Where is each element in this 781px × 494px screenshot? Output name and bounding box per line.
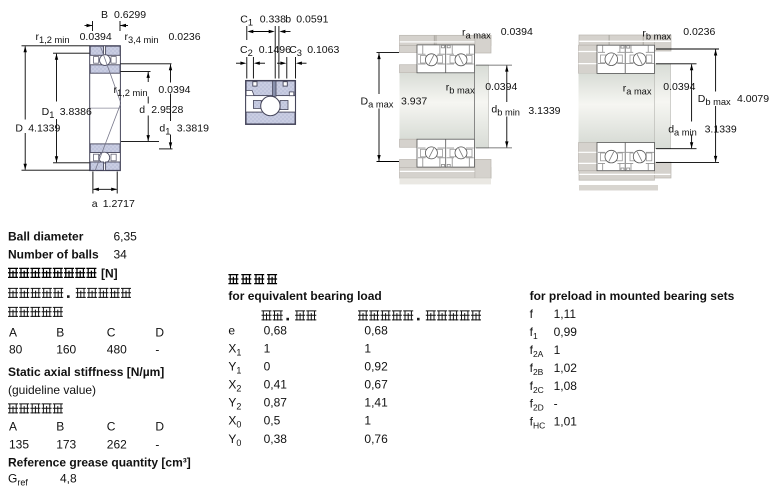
svg-text:1,08: 1,08 (554, 379, 578, 393)
svg-text:0: 0 (264, 360, 271, 374)
svg-text:3.937: 3.937 (401, 96, 427, 108)
svg-text:D: D (155, 325, 164, 339)
svg-text:0.0236: 0.0236 (169, 31, 201, 43)
svg-text:1,41: 1,41 (364, 396, 388, 410)
svg-text:1,02: 1,02 (554, 361, 578, 375)
svg-text:A: A (9, 325, 17, 339)
svg-text:Number of balls: Number of balls (8, 248, 99, 262)
svg-text:0.0394: 0.0394 (158, 84, 190, 96)
svg-text:0,68: 0,68 (264, 324, 288, 338)
svg-text:0.0394: 0.0394 (485, 81, 517, 93)
svg-text:1,01: 1,01 (554, 415, 578, 429)
svg-text:3.8386: 3.8386 (60, 106, 92, 118)
svg-text:0,67: 0,67 (364, 378, 388, 392)
svg-text:173: 173 (56, 437, 76, 451)
svg-text:b: b (285, 14, 291, 26)
svg-text:0.338: 0.338 (260, 14, 286, 26)
svg-text:for equivalent bearing load: for equivalent bearing load (228, 289, 381, 303)
svg-text:-: - (554, 397, 558, 411)
svg-text:262: 262 (107, 437, 127, 451)
svg-text:1,11: 1,11 (554, 307, 577, 321)
svg-text:a: a (92, 198, 98, 210)
svg-text:80: 80 (9, 343, 23, 357)
svg-text:0.0394: 0.0394 (80, 31, 112, 43)
svg-text:4.0079: 4.0079 (737, 93, 769, 105)
svg-text:4,8: 4,8 (60, 472, 77, 486)
svg-text:34: 34 (114, 248, 128, 262)
svg-text:D: D (155, 420, 164, 434)
svg-text:d: d (139, 104, 145, 116)
svg-text:B: B (56, 420, 64, 434)
svg-text:1: 1 (364, 342, 371, 356)
svg-text:0,99: 0,99 (554, 325, 578, 339)
svg-text:C: C (107, 325, 116, 339)
svg-text:1.2717: 1.2717 (103, 198, 135, 210)
svg-text:[N]: [N] (101, 267, 118, 281)
svg-text:6,35: 6,35 (114, 230, 138, 244)
svg-text:3.1339: 3.1339 (528, 105, 560, 117)
svg-text:4.1339: 4.1339 (28, 123, 60, 135)
svg-text:3.3819: 3.3819 (177, 123, 209, 135)
svg-text:C: C (107, 420, 116, 434)
svg-text:Ball diameter: Ball diameter (8, 230, 84, 244)
svg-text:0.1063: 0.1063 (307, 44, 339, 56)
svg-text:480: 480 (107, 343, 127, 357)
svg-text:D: D (15, 123, 23, 135)
svg-text:-: - (155, 437, 159, 451)
svg-text:-: - (155, 343, 159, 357)
svg-text:0,87: 0,87 (264, 396, 288, 410)
svg-text:0.0236: 0.0236 (683, 26, 715, 38)
svg-text:e: e (228, 324, 235, 338)
svg-text:0.0394: 0.0394 (663, 81, 695, 93)
svg-text:1: 1 (554, 343, 561, 357)
svg-text:B: B (56, 325, 64, 339)
svg-text:0.0394: 0.0394 (501, 26, 533, 38)
svg-text:(guideline value): (guideline value) (8, 383, 96, 397)
svg-text:0,92: 0,92 (364, 360, 388, 374)
svg-text:0,38: 0,38 (264, 432, 288, 446)
svg-text:0.6299: 0.6299 (114, 9, 146, 21)
svg-text:0,76: 0,76 (364, 432, 388, 446)
svg-text:0,5: 0,5 (264, 414, 281, 428)
svg-text:3.1339: 3.1339 (705, 124, 737, 136)
svg-text:Reference grease quantity [cm³: Reference grease quantity [cm³] (8, 456, 191, 470)
svg-text:1: 1 (264, 342, 271, 356)
svg-text:0.0591: 0.0591 (296, 14, 328, 26)
svg-text:0.1496: 0.1496 (259, 44, 291, 56)
svg-text:2.9528: 2.9528 (151, 104, 183, 116)
svg-text:for preload in mounted bearing: for preload in mounted bearing sets (530, 289, 735, 303)
svg-text:0,68: 0,68 (364, 324, 388, 338)
svg-text:B: B (101, 9, 108, 21)
svg-text:Static axial stiffness [N/µm]: Static axial stiffness [N/µm] (8, 365, 164, 379)
svg-text:1: 1 (364, 414, 371, 428)
svg-text:135: 135 (9, 437, 29, 451)
svg-text:0,41: 0,41 (264, 378, 288, 392)
svg-text:160: 160 (56, 343, 76, 357)
svg-text:A: A (9, 420, 17, 434)
